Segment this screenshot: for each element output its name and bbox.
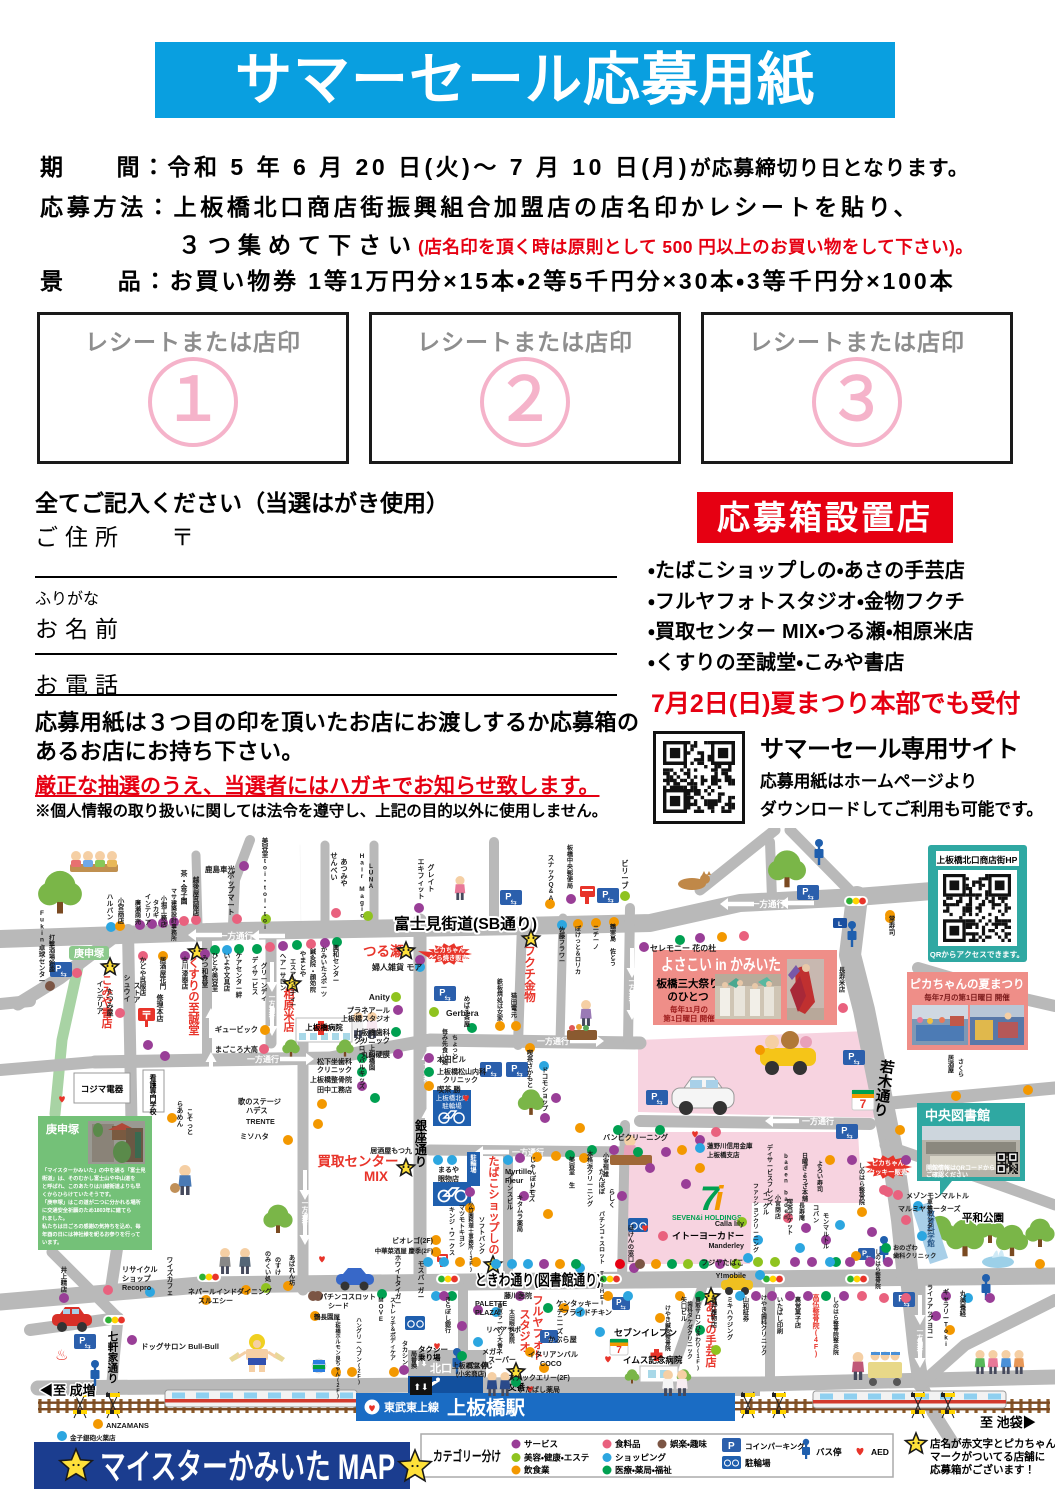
svg-text:イーグル: イーグル bbox=[763, 1191, 769, 1217]
svg-text:長寿米店: 長寿米店 bbox=[839, 965, 846, 993]
svg-text:ケンタッキー: ケンタッキー bbox=[556, 1299, 599, 1308]
svg-text:いたばし薬局: いたばし薬局 bbox=[518, 1385, 560, 1394]
svg-text:おのざわ: おのざわ bbox=[893, 1244, 918, 1252]
svg-text:フクチ金物: フクチ金物 bbox=[524, 946, 536, 1004]
svg-text:ピカちゃんの夏まつり: ピカちゃんの夏まつり bbox=[910, 978, 1025, 991]
svg-text:年酉の日には神社様を祀るお参りを行って: 年酉の日には神社様を祀るお参りを行って bbox=[42, 1230, 140, 1238]
svg-text:ファッションクリーニング: ファッションクリーニング bbox=[753, 1183, 759, 1254]
svg-text:蓮野川信用金庫: 蓮野川信用金庫 bbox=[707, 1141, 753, 1150]
svg-text:開館情報はQRコードから: 開館情報はQRコードから bbox=[926, 1164, 995, 1172]
svg-text:至 池袋▶: 至 池袋▶ bbox=[980, 1415, 1036, 1430]
svg-text:七軒家通り: 七軒家通り bbox=[108, 1330, 119, 1385]
svg-text:ショッピング: ショッピング bbox=[615, 1453, 667, 1463]
svg-text:P: P bbox=[728, 1441, 735, 1452]
svg-text:のひとつ: のひとつ bbox=[667, 991, 708, 1003]
svg-text:ギュービック: ギュービック bbox=[215, 1025, 258, 1034]
svg-text:⇆: ⇆ bbox=[656, 1097, 663, 1106]
svg-text:かぶら屋: かぶら屋 bbox=[548, 1335, 577, 1344]
svg-text:のすけ: のすけ bbox=[275, 1257, 281, 1276]
svg-text:じゃんぽリー: じゃんぽリー bbox=[530, 1157, 537, 1196]
svg-text:スナックエリー(2F): スナックエリー(2F) bbox=[508, 1373, 570, 1382]
svg-text:けやき鍼灸整骨院: けやき鍼灸整骨院 bbox=[664, 1305, 671, 1353]
svg-text:◀至 成増: ◀至 成増 bbox=[40, 1383, 96, 1398]
svg-text:一方通行: 一方通行 bbox=[916, 1328, 924, 1355]
svg-text:COCO: COCO bbox=[540, 1359, 562, 1368]
svg-text:⇆: ⇆ bbox=[444, 993, 451, 1002]
svg-text:セレモニー 花の杜: セレモニー 花の杜 bbox=[650, 943, 716, 953]
svg-text:看護専門学校: 看護専門学校 bbox=[150, 1073, 157, 1116]
svg-text:コジマ電器: コジマ電器 bbox=[81, 1084, 124, 1094]
svg-text:グローバルキッズ: グローバルキッズ bbox=[359, 1038, 366, 1090]
svg-text:に交通安全祈願のため1803年に建てら: に交通安全祈願のため1803年に建てら bbox=[42, 1206, 131, 1214]
svg-text:⇆: ⇆ bbox=[516, 1069, 523, 1078]
svg-text:Anity: Anity bbox=[369, 992, 391, 1002]
svg-text:銀座通り: 銀座通り bbox=[414, 1118, 428, 1169]
svg-text:Y!mobile: Y!mobile bbox=[716, 1271, 746, 1280]
svg-text:メゾンモンマルトル: メゾンモンマルトル bbox=[906, 1191, 969, 1200]
svg-text:店名が赤文字とピカちゃん: 店名が赤文字とピカちゃん bbox=[930, 1437, 1055, 1450]
svg-text:裏覚菓子店: 裏覚菓子店 bbox=[794, 1296, 802, 1329]
svg-text:パチンコスロット: パチンコスロット bbox=[320, 1292, 376, 1301]
svg-text:小室恒雄: 小室恒雄 bbox=[602, 1152, 609, 1178]
svg-text:PLAZA: PLAZA bbox=[475, 1308, 499, 1317]
svg-text:インテリア: インテリア bbox=[145, 894, 151, 926]
svg-text:クリニック: クリニック bbox=[443, 1075, 478, 1084]
svg-text:一方通行: 一方通行 bbox=[628, 978, 636, 1005]
svg-text:キタムラ薬局: キタムラ薬局 bbox=[516, 1195, 524, 1234]
svg-text:ポップマート: ポップマート bbox=[227, 871, 235, 917]
svg-text:山和証券: 山和証券 bbox=[742, 1296, 750, 1323]
svg-text:居酒屋花門: 居酒屋花門 bbox=[159, 956, 167, 991]
svg-text:グレイト: グレイト bbox=[428, 863, 435, 893]
svg-text:板橋中央郵便局: 板橋中央郵便局 bbox=[566, 844, 574, 890]
svg-text:Fleur: Fleur bbox=[505, 1176, 523, 1185]
svg-text:QRからアクセスできます。: QRからアクセスできます。 bbox=[930, 949, 1024, 959]
svg-text:マルミヤモーターズ: マルミヤモーターズ bbox=[898, 1204, 961, 1213]
svg-text:シード: シード bbox=[328, 1302, 349, 1310]
svg-text:常寿司: 常寿司 bbox=[889, 914, 896, 936]
svg-text:「庚申塚」はこの道が二つに分かれる場所: 「庚申塚」はこの道が二つに分かれる場所 bbox=[42, 1198, 141, 1206]
svg-text:コインパーキング: コインパーキング bbox=[745, 1441, 805, 1451]
svg-text:応募箱がございます！: 応募箱がございます！ bbox=[930, 1463, 1035, 1476]
svg-text:第1日曜日 開催: 第1日曜日 開催 bbox=[662, 1013, 715, 1023]
svg-text:キンジ・ワークス: キンジ・ワークス bbox=[449, 1207, 455, 1257]
svg-text:らあめん: らあめん bbox=[177, 1100, 184, 1128]
svg-text:丸美養経: 丸美養経 bbox=[959, 1289, 967, 1318]
svg-text:本田ビル: 本田ビル bbox=[436, 1055, 467, 1064]
svg-text:しのはら整骨院: しのはら整骨院 bbox=[875, 1249, 881, 1290]
svg-text:ショップ: ショップ bbox=[122, 1274, 152, 1283]
svg-text:エキフィット: エキフィット bbox=[418, 859, 425, 901]
svg-text:います。: います。 bbox=[42, 1238, 62, 1246]
svg-text:「マイスターかみいた」の中を通る「富士見: 「マイスターかみいた」の中を通る「富士見 bbox=[42, 1166, 146, 1174]
svg-text:上板橋スタジオ: 上板橋スタジオ bbox=[341, 1014, 390, 1023]
svg-text:フジヤたばこ: フジヤたばこ bbox=[701, 1258, 744, 1267]
svg-text:一方通行: 一方通行 bbox=[247, 1054, 279, 1064]
svg-text:メガネ: メガネ bbox=[482, 1347, 503, 1356]
svg-text:ひとみ美容室: ひとみ美容室 bbox=[212, 952, 219, 993]
svg-text:リペアラボ: リペアラボ bbox=[486, 1325, 521, 1334]
svg-text:ストレッチ＆ボディケア: ストレッチ＆ボディケア bbox=[390, 1297, 396, 1362]
svg-text:買取センター: 買取センター bbox=[318, 1154, 399, 1169]
svg-text:毎年7月の第1日曜日 開催: 毎年7月の第1日曜日 開催 bbox=[924, 992, 1010, 1002]
svg-text:修理本店: 修理本店 bbox=[156, 993, 164, 1023]
svg-text:ケアセンター絆: ケアセンター絆 bbox=[235, 952, 243, 999]
svg-text:歯科クリニック: 歯科クリニック bbox=[893, 1252, 936, 1260]
svg-text:AED: AED bbox=[871, 1447, 889, 1457]
svg-text:モンマルトル: モンマルトル bbox=[823, 1213, 829, 1251]
svg-text:ときわ通り(図書館通り): ときわ通り(図書館通り) bbox=[475, 1271, 601, 1289]
svg-text:くすりの至誠堂: くすりの至誠堂 bbox=[188, 957, 200, 1037]
svg-text:Fukin: Fukin bbox=[40, 910, 44, 944]
svg-text:一方通行: 一方通行 bbox=[301, 1200, 309, 1227]
svg-text:越後屋呉服店: 越後屋呉服店 bbox=[192, 875, 200, 917]
svg-text:マイスターかみいた MAP: マイスターかみいた MAP bbox=[100, 1448, 395, 1487]
svg-text:喫茶 勝: 喫茶 勝 bbox=[437, 1085, 461, 1094]
svg-text:眼物店: 眼物店 bbox=[438, 1174, 459, 1183]
svg-text:小堀工務店: 小堀工務店 bbox=[160, 895, 168, 928]
svg-text:上板橋病院: 上板橋病院 bbox=[305, 1022, 343, 1032]
svg-text:MIX: MIX bbox=[364, 1169, 388, 1184]
svg-text:つる瀬: つる瀬 bbox=[363, 943, 404, 959]
svg-text:小宮商店: 小宮商店 bbox=[117, 896, 125, 925]
svg-text:かみいたスポーツ: かみいたスポーツ bbox=[321, 946, 328, 998]
svg-text:駐輪場: 駐輪場 bbox=[744, 1458, 771, 1468]
svg-text:上板橋松山内科: 上板橋松山内科 bbox=[437, 1067, 486, 1076]
svg-text:鶴長園屋: 鶴長園屋 bbox=[313, 1312, 341, 1321]
svg-text:〒: 〒 bbox=[141, 1009, 152, 1022]
svg-text:長寿庵: 長寿庵 bbox=[799, 1202, 805, 1222]
svg-text:喫茶さかもと: 喫茶さかもと bbox=[526, 1048, 534, 1089]
svg-text:くからひらけていたそうです。: くからひらけていたそうです。 bbox=[42, 1190, 114, 1198]
svg-text:Recopro: Recopro bbox=[122, 1283, 152, 1292]
svg-text:さくら: さくら bbox=[958, 1059, 964, 1079]
svg-text:ネパールインドダイニング: ネパールインドダイニング bbox=[188, 1287, 272, 1296]
svg-text:一方通行: 一方通行 bbox=[268, 994, 276, 1021]
svg-text:まるや: まるや bbox=[438, 1165, 459, 1174]
svg-text:バス停: バス停 bbox=[816, 1447, 842, 1457]
svg-text:ニチーノ: ニチーノ bbox=[593, 925, 599, 951]
svg-text:と呼ばれ、このあたりは川越街道よりも早: と呼ばれ、このあたりは川越街道よりも早 bbox=[42, 1182, 141, 1190]
svg-text:Manderley: Manderley bbox=[708, 1241, 744, 1250]
svg-text:クリニック: クリニック bbox=[354, 1036, 390, 1045]
svg-text:ドッグサロン Bull-Bull: ドッグサロン Bull-Bull bbox=[141, 1341, 219, 1351]
svg-text:マークがついてる店舗に: マークがついてる店舗に bbox=[930, 1450, 1045, 1463]
svg-text:上板橋宝くじ: 上板橋宝くじ bbox=[452, 1361, 493, 1370]
svg-text:田中工務店: 田中工務店 bbox=[317, 1085, 352, 1094]
svg-text:毎年11月の: 毎年11月の bbox=[670, 1004, 708, 1014]
svg-text:興和センター: 興和センター bbox=[333, 943, 340, 985]
svg-text:上板橋北口商店街HP: 上板橋北口商店街HP bbox=[937, 854, 1018, 865]
svg-text:局番換: 局番換 bbox=[410, 1350, 418, 1370]
svg-text:庚申塚: 庚申塚 bbox=[45, 1122, 80, 1136]
svg-text:一方通行: 一方通行 bbox=[537, 1036, 569, 1046]
svg-text:街道」は、そのむかし富士山や中山道を: 街道」は、そのむかし富士山や中山道を bbox=[41, 1174, 135, 1182]
svg-text:ビリーブ: ビリーブ bbox=[621, 859, 629, 890]
svg-text:庚申塚: 庚申塚 bbox=[73, 947, 105, 960]
svg-text:美容・健康・エステ: 美容・健康・エステ bbox=[523, 1453, 589, 1463]
svg-text:TRENTE: TRENTE bbox=[246, 1117, 275, 1126]
svg-text:けやき歯科クリニック: けやき歯科クリニック bbox=[761, 1295, 767, 1357]
svg-text:あばれん坊: あばれん坊 bbox=[289, 1254, 296, 1287]
svg-text:ピカちゃん: ピカちゃん bbox=[872, 1158, 905, 1167]
svg-text:一方通行: 一方通行 bbox=[802, 1116, 834, 1126]
svg-text:よさこい in かみいた: よさこい in かみいた bbox=[661, 956, 781, 974]
svg-text:ミソハタ: ミソハタ bbox=[240, 1132, 269, 1141]
svg-text:サービス: サービス bbox=[524, 1439, 558, 1449]
svg-text:かどや呉服店: かどや呉服店 bbox=[139, 956, 147, 997]
svg-text:一方通行: 一方通行 bbox=[751, 899, 786, 909]
svg-text:上板橋支店: 上板橋支店 bbox=[707, 1150, 740, 1159]
svg-text:婦人雑貨 モア: 婦人雑貨 モア bbox=[372, 962, 422, 972]
svg-text:小宮商店: 小宮商店 bbox=[774, 1194, 781, 1220]
svg-text:いよや文具店: いよや文具店 bbox=[224, 952, 231, 993]
svg-text:たばこショップしの: たばこショップしの bbox=[489, 1155, 501, 1256]
svg-text:居酒屋: 居酒屋 bbox=[948, 1054, 955, 1075]
svg-text:Myrtille: Myrtille bbox=[505, 1167, 531, 1176]
svg-text:坂井履物店: 坂井履物店 bbox=[710, 1296, 718, 1329]
svg-text:まごころ大高: まごころ大高 bbox=[215, 1045, 258, 1054]
svg-text:ぽけっと＆ロリカ: ぽけっと＆ロリカ bbox=[575, 925, 582, 976]
svg-text:駐輪場: 駐輪場 bbox=[442, 1101, 462, 1110]
svg-text:モスバーガー: モスバーガー bbox=[418, 1260, 425, 1301]
svg-text:きらぼし銀行: きらぼし銀行 bbox=[444, 1296, 452, 1335]
svg-text:⇆: ⇆ bbox=[846, 1131, 853, 1140]
svg-text:たつみ屋: たつみ屋 bbox=[107, 987, 114, 1017]
svg-text:⇆: ⇆ bbox=[620, 1304, 626, 1311]
svg-text:歌のステージ: 歌のステージ bbox=[238, 1097, 281, 1106]
svg-text:イトーヨーカドー: イトーヨーカドー bbox=[672, 1231, 744, 1241]
svg-text:スルエシー: スルエシー bbox=[198, 1297, 233, 1305]
svg-text:エスアンドディー: エスアンドディー bbox=[290, 959, 297, 1010]
svg-text:鹿島車光: 鹿島車光 bbox=[205, 864, 235, 874]
svg-text:Gerbera: Gerbera bbox=[446, 1008, 479, 1018]
svg-text:⇆: ⇆ bbox=[490, 1069, 497, 1078]
svg-text:れました。: れました。 bbox=[42, 1214, 68, 1222]
svg-text:平和公園: 平和公園 bbox=[962, 1211, 1004, 1224]
svg-text:コバン: コバン bbox=[813, 1205, 819, 1224]
svg-text:インテリア: インテリア bbox=[97, 980, 104, 1016]
svg-text:茶・金子園: 茶・金子園 bbox=[180, 869, 188, 906]
svg-text:居酒屋もつ九: 居酒屋もつ九 bbox=[370, 1146, 412, 1155]
svg-text:丸山硬膜: 丸山硬膜 bbox=[360, 1050, 391, 1059]
svg-text:ライフアップヨコー: ライフアップヨコー bbox=[927, 1285, 934, 1342]
svg-text:上板橋整骨院: 上板橋整骨院 bbox=[310, 1075, 352, 1084]
svg-text:歯科タケダクリニック: 歯科タケダクリニック bbox=[687, 1300, 693, 1360]
svg-text:藤川医院: 藤川医院 bbox=[503, 1291, 532, 1300]
svg-text:どら焼き販売: どら焼き販売 bbox=[430, 953, 468, 962]
svg-text:L: L bbox=[838, 921, 842, 928]
svg-text:よろい寿司: よろい寿司 bbox=[817, 1161, 823, 1193]
svg-text:ソフトバンク: ソフトバンク bbox=[479, 1217, 486, 1256]
svg-text:私たちは日ごろの感謝の気持ちを込め、毎: 私たちは日ごろの感謝の気持ちを込め、毎 bbox=[42, 1222, 141, 1230]
svg-text:イタリアンバル: イタリアンバル bbox=[528, 1350, 579, 1359]
svg-text:日曜ぎょうざ本舗: 日曜ぎょうざ本舗 bbox=[801, 1153, 809, 1203]
svg-text:井上精店: 井上精店 bbox=[61, 1265, 68, 1294]
svg-text:廣瀬商売: 廣瀬商売 bbox=[135, 899, 142, 926]
svg-text:タカシン: タカシン bbox=[402, 1340, 408, 1366]
svg-text:ドコモショップ: ドコモショップ bbox=[542, 1066, 549, 1113]
svg-text:i: i bbox=[714, 1180, 725, 1218]
svg-text:バンビクリーニング: バンビクリーニング bbox=[603, 1133, 669, 1142]
svg-text:マツモトキヨシ: マツモトキヨシ bbox=[459, 1205, 465, 1249]
svg-text:北口: 北口 bbox=[430, 1361, 452, 1375]
svg-text:やまとや: やまとや bbox=[300, 949, 307, 978]
svg-text:⇆: ⇆ bbox=[510, 897, 517, 906]
svg-text:ディサービス: ディサービス bbox=[252, 955, 259, 996]
svg-text:7: 7 bbox=[616, 1345, 622, 1356]
svg-text:クリニック: クリニック bbox=[317, 1065, 352, 1074]
svg-text:PALETTE: PALETTE bbox=[475, 1299, 507, 1308]
svg-text:松下坐歯科: 松下坐歯科 bbox=[317, 1057, 352, 1066]
svg-text:⇆: ⇆ bbox=[853, 1057, 860, 1066]
svg-text:美容室 生: 美容室 生 bbox=[568, 1156, 576, 1189]
svg-text:グリーンディ: グリーンディ bbox=[261, 961, 268, 1002]
svg-text:鉄板焼処は女家: 鉄板焼処は女家 bbox=[496, 978, 504, 1023]
svg-text:上板橋駅: 上板橋駅 bbox=[447, 1396, 526, 1419]
svg-text:ハルバン: ハルバン bbox=[107, 894, 114, 921]
svg-text:らしく: らしく bbox=[609, 1188, 615, 1209]
svg-text:7: 7 bbox=[860, 1097, 867, 1111]
svg-text:東武東上線: 東武東上線 bbox=[384, 1400, 440, 1414]
svg-text:医療・薬局・福祉: 医療・薬局・福祉 bbox=[615, 1465, 672, 1475]
svg-text:佐藤フラワー: 佐藤フラワー bbox=[558, 926, 566, 966]
svg-text:ハデス: ハデス bbox=[246, 1106, 268, 1115]
svg-text:駐輪場: 駐輪場 bbox=[469, 1154, 477, 1174]
svg-text:娯楽・趣味: 娯楽・趣味 bbox=[670, 1439, 707, 1449]
svg-text:せんべい: せんべい bbox=[331, 852, 338, 881]
svg-text:中華菜酒屋 慶季(2F): 中華菜酒屋 慶季(2F) bbox=[375, 1246, 433, 1255]
svg-text:みつ和食堂: みつ和食堂 bbox=[201, 954, 209, 989]
svg-text:⇆: ⇆ bbox=[84, 1341, 91, 1350]
svg-text:しのはら整骨院整炎院: しのはら整骨院整炎院 bbox=[833, 1297, 839, 1356]
svg-text:ビオレゴ(2F): ビオレゴ(2F) bbox=[392, 1236, 433, 1245]
svg-text:猫田電元: 猫田電元 bbox=[510, 992, 518, 1019]
svg-text:⇆: ⇆ bbox=[807, 892, 814, 901]
svg-text:タカギ: タカギ bbox=[153, 899, 160, 920]
svg-text:打撃酒場鈴鹿: 打撃酒場鈴鹿 bbox=[48, 934, 56, 974]
svg-text:食料品: 食料品 bbox=[615, 1439, 641, 1449]
svg-text:LUNA: LUNA bbox=[369, 863, 374, 890]
svg-text:車検センター: 車検センター bbox=[927, 1198, 933, 1235]
svg-text:あつみや: あつみや bbox=[341, 857, 348, 887]
svg-text:⇆: ⇆ bbox=[60, 969, 67, 978]
svg-text:喫茶ポケット: 喫茶ポケット bbox=[787, 1198, 794, 1237]
svg-text:マサ建築設計事務所: マサ建築設計事務所 bbox=[170, 888, 177, 942]
svg-text:イムス記念病院: イムス記念病院 bbox=[623, 1355, 683, 1365]
svg-text:(小劣商店): (小劣商店) bbox=[456, 1369, 486, 1378]
svg-text:富士見街道(SB通り): 富士見街道(SB通り) bbox=[394, 914, 537, 933]
svg-text:いたばし印刷: いたばし印刷 bbox=[777, 1297, 784, 1336]
svg-text:卓球センター: 卓球センター bbox=[39, 943, 46, 985]
svg-text:⬆⬇: ⬆⬇ bbox=[413, 1382, 428, 1392]
svg-text:ホワイトタイガー: ホワイトタイガー bbox=[395, 1254, 402, 1307]
svg-text:一方通行: 一方通行 bbox=[219, 931, 254, 941]
svg-text:ANZAMANS: ANZAMANS bbox=[106, 1421, 149, 1430]
svg-text:ピカちゃん: ピカちゃん bbox=[433, 945, 465, 954]
svg-text:乗り場: 乗り場 bbox=[418, 1352, 441, 1362]
svg-text:本格派クリーニング: 本格派クリーニング bbox=[586, 1150, 594, 1208]
svg-text:ヘアーサロン: ヘアーサロン bbox=[280, 953, 287, 992]
svg-text:ワイズカフェ: ワイズカフェ bbox=[167, 1256, 174, 1297]
svg-text:のみくい処: のみくい処 bbox=[264, 1251, 272, 1283]
svg-text:板橋三大祭り: 板橋三大祭り bbox=[657, 977, 720, 990]
svg-text:古川漆器店: 古川漆器店 bbox=[181, 955, 189, 991]
svg-text:フライドチキン: フライドチキン bbox=[562, 1308, 612, 1317]
svg-text:ご確認ください: ご確認ください bbox=[926, 1171, 968, 1179]
svg-text:カテゴリー分け: カテゴリー分け bbox=[433, 1448, 501, 1464]
svg-text:ミキハウジング: ミキハウジング bbox=[727, 1297, 733, 1341]
svg-text:中央図書館: 中央図書館 bbox=[925, 1108, 990, 1123]
svg-text:シュウイ: シュウイ bbox=[124, 974, 131, 1003]
svg-text:プラネアール: プラネアール bbox=[347, 1006, 391, 1015]
svg-text:こそっと: こそっと bbox=[187, 1108, 194, 1136]
svg-text:リサイクル: リサイクル bbox=[122, 1265, 158, 1274]
svg-text:Calla lily: Calla lily bbox=[715, 1219, 744, 1228]
svg-text:⇆: ⇆ bbox=[607, 895, 614, 904]
svg-text:金子銀砲火薬店: 金子銀砲火薬店 bbox=[70, 1433, 116, 1442]
svg-text:ほけんの窓口: ほけんの窓口 bbox=[628, 1225, 635, 1264]
svg-text:クッキー販売: クッキー販売 bbox=[869, 1167, 909, 1176]
svg-text:飲食業: 飲食業 bbox=[523, 1465, 550, 1475]
svg-text:♨: ♨ bbox=[55, 1347, 68, 1364]
svg-text:しのはら整骨院: しのはら整骨院 bbox=[859, 1163, 866, 1207]
